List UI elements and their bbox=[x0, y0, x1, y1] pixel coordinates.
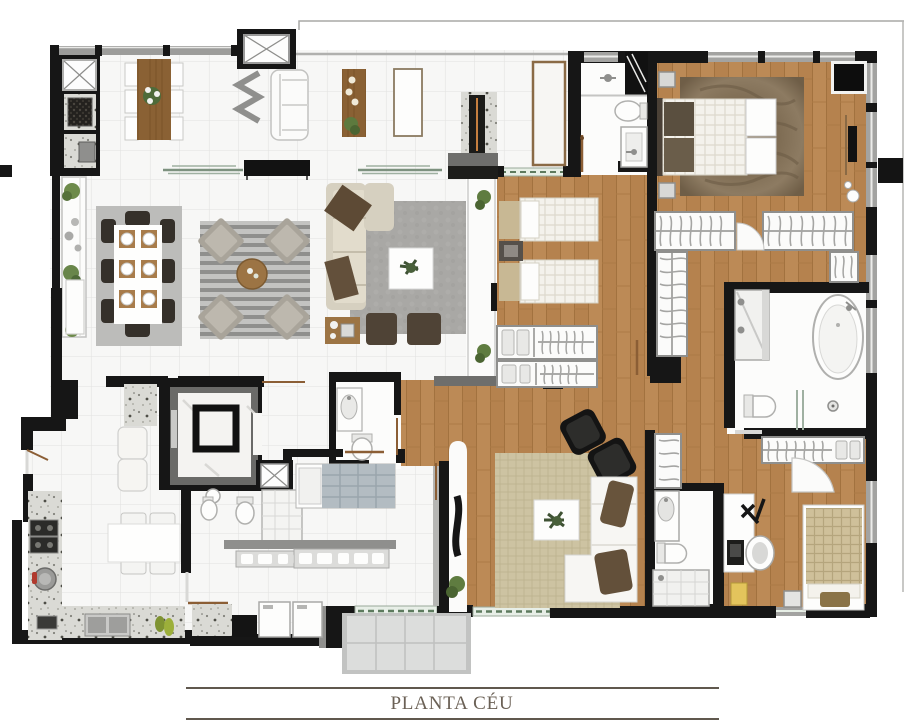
svg-text:PLANTA CÉU: PLANTA CÉU bbox=[390, 692, 513, 714]
